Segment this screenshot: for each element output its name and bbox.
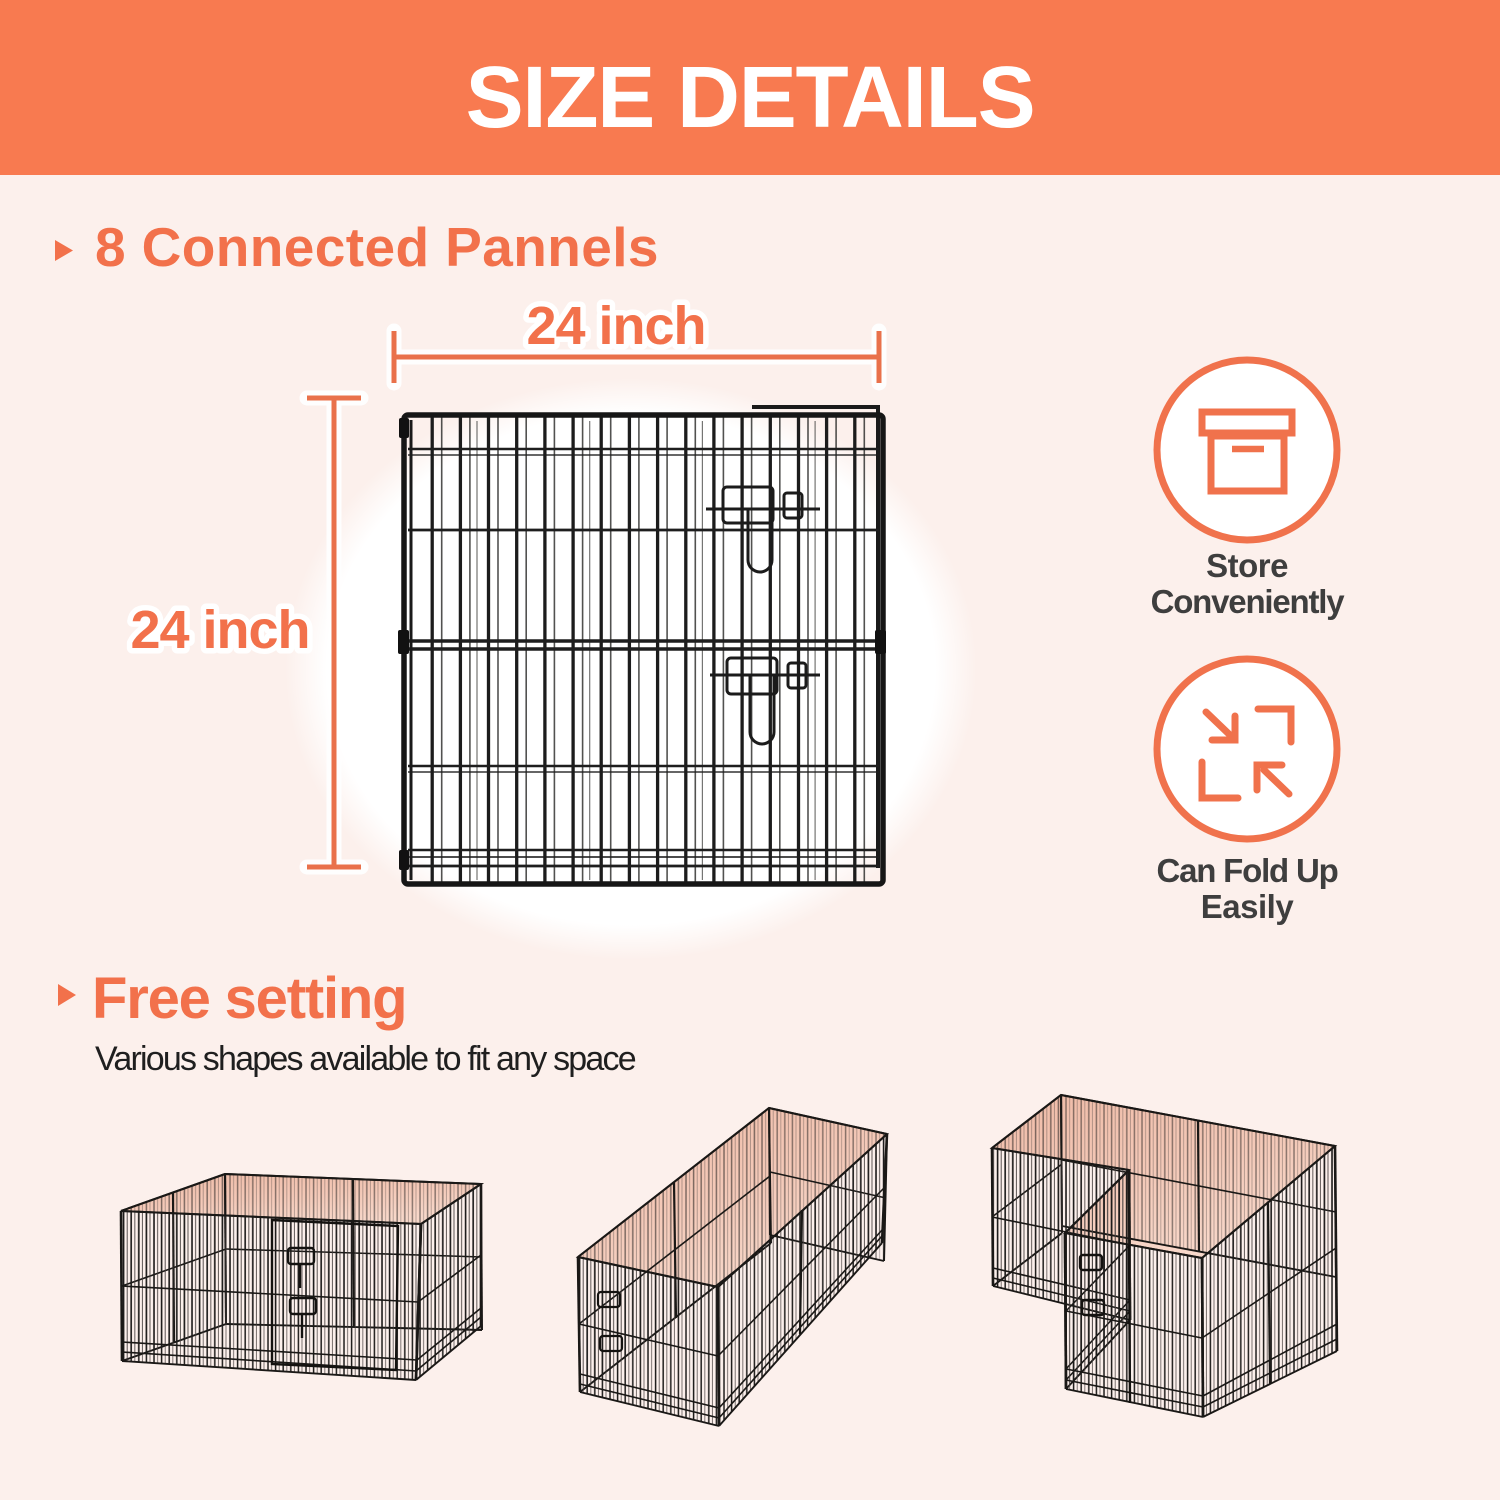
svg-text:Easily: Easily — [1201, 888, 1295, 925]
svg-text:Free setting: Free setting — [92, 966, 406, 1031]
svg-text:Store: Store — [1206, 547, 1288, 584]
svg-text:8 Connected Pannels: 8 Connected Pannels — [95, 216, 659, 278]
svg-text:24 inch: 24 inch — [526, 296, 705, 356]
svg-text:Conveniently: Conveniently — [1151, 583, 1346, 620]
svg-text:24 inch: 24 inch — [130, 600, 309, 660]
svg-text:Can Fold Up: Can Fold Up — [1156, 852, 1337, 889]
svg-text:Various shapes available to fi: Various shapes available to fit any spac… — [95, 1040, 636, 1078]
svg-text:SIZE DETAILS: SIZE DETAILS — [466, 49, 1035, 146]
